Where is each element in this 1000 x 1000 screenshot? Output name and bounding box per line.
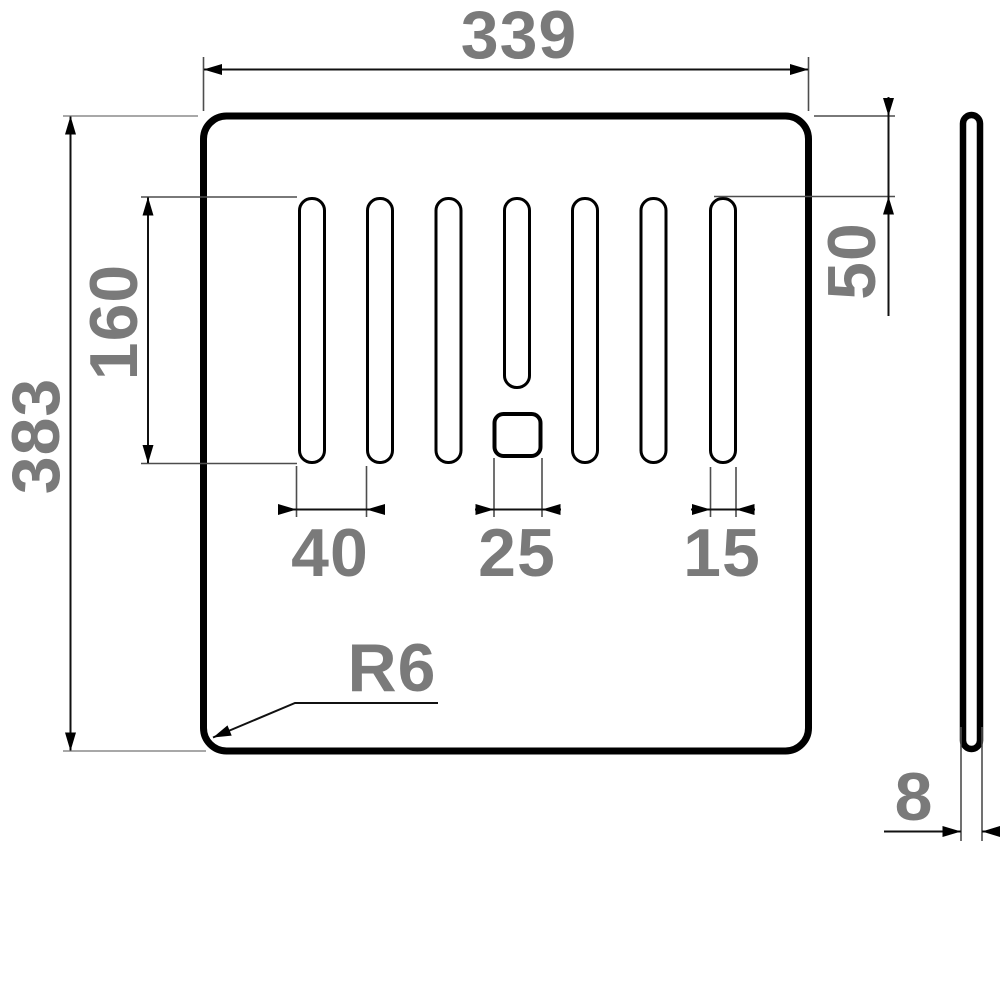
dimension-label-50: 50 [814, 222, 890, 300]
drawing-canvas: 339 383 160 50 40 [0, 0, 1000, 1000]
drain-slot-1 [300, 199, 325, 463]
arrowhead [883, 98, 894, 116]
dimension-label-383: 383 [0, 378, 74, 494]
dimension-label-8: 8 [895, 759, 934, 835]
side-view-outline [963, 115, 980, 749]
arrowhead [790, 64, 809, 75]
arrowhead [65, 733, 76, 752]
dimension-overall-height: 383 [0, 116, 206, 751]
technical-drawing: 339 383 160 50 40 [0, 0, 1000, 1000]
side-view [963, 115, 980, 749]
arrowhead [204, 64, 223, 75]
arrowhead [143, 445, 154, 464]
dimension-label-40: 40 [291, 515, 369, 591]
dimension-overall-width: 339 [204, 0, 809, 111]
drain-slot-2 [368, 199, 393, 463]
drain-slot-7 [711, 199, 736, 463]
drain-slot-3 [436, 199, 461, 463]
arrowhead [982, 826, 1000, 837]
square-hole [495, 414, 541, 456]
dimension-thickness: 8 [884, 727, 1000, 841]
dimension-label-339: 339 [461, 0, 577, 73]
arrowhead [143, 197, 154, 216]
dimension-label-160: 160 [76, 264, 152, 380]
drain-slot-6 [641, 199, 666, 463]
arrowhead [883, 197, 894, 215]
dimension-label-25: 25 [478, 515, 556, 591]
arrowhead [65, 116, 76, 135]
drain-slot-5 [573, 199, 598, 463]
front-view [204, 116, 809, 751]
drain-slot-4-short [505, 199, 530, 388]
arrowhead [943, 826, 962, 837]
dimension-label-15: 15 [683, 515, 761, 591]
radius-label-r6: R6 [348, 630, 437, 706]
